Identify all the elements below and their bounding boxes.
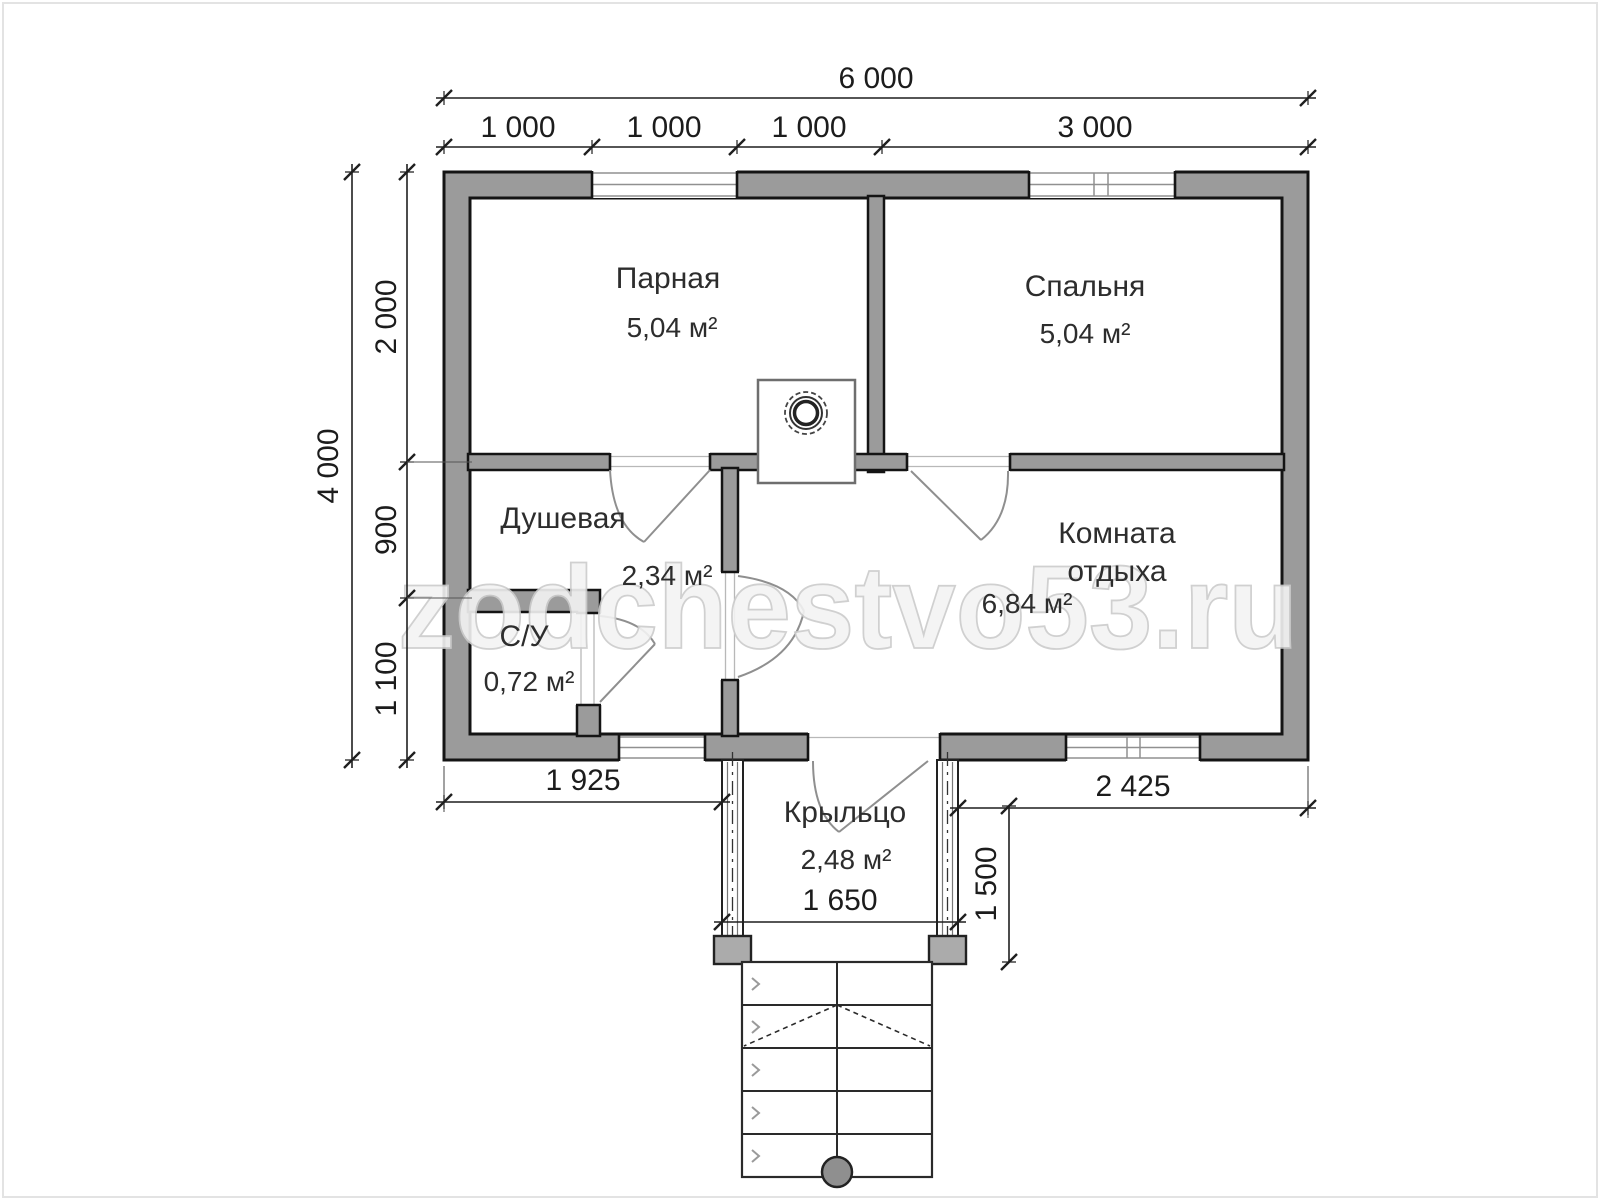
room-area-lounge: 6,84 м² — [982, 588, 1073, 619]
room-area-parnaya: 5,04 м² — [627, 312, 718, 343]
window-bottom-right — [1066, 735, 1200, 762]
stairs — [742, 962, 932, 1187]
dim-porch-depth-label: 1 500 — [970, 846, 1003, 921]
door-swing-bedroom — [911, 471, 1008, 540]
floor-plan-svg: zodchestvo53.ru Парная 5,04 м² Спальня 5… — [0, 0, 1600, 1200]
dim-top-total-label: 6 000 — [838, 62, 913, 95]
porch-column-base-right — [929, 936, 966, 964]
dim-left-total-label: 4 000 — [312, 428, 345, 503]
room-label-wc: С/У — [499, 620, 549, 653]
dim-top-seg2-label: 1 000 — [626, 111, 701, 144]
porch-column-right — [937, 752, 958, 946]
dim-top-seg1-label: 1 000 — [480, 111, 555, 144]
dim-porch-width-label: 1 650 — [802, 884, 877, 917]
dim-left-seg3-label: 1 100 — [370, 641, 403, 716]
stove — [758, 380, 855, 483]
room-label-porch: Крыльцо — [784, 796, 906, 829]
room-area-dushevaya: 2,34 м² — [622, 560, 713, 591]
dim-left-seg1-label: 2 000 — [370, 279, 403, 354]
dim-bottom-right-label: 2 425 — [1095, 770, 1170, 803]
stove-body — [758, 380, 855, 483]
stairs-direction-circle — [822, 1157, 852, 1187]
window-top-left — [592, 170, 737, 199]
floor-plan-page: zodchestvo53.ru Парная 5,04 м² Спальня 5… — [0, 0, 1600, 1200]
wall-bedroom-divider — [868, 196, 884, 472]
room-area-porch: 2,48 м² — [801, 844, 892, 875]
window-bottom-left — [619, 735, 705, 762]
wall-middle — [468, 454, 1284, 470]
door-opening-shower — [610, 451, 710, 473]
room-area-spalnya: 5,04 м² — [1040, 318, 1131, 349]
porch-column-base-left — [714, 936, 751, 964]
window-top-right — [1029, 170, 1175, 199]
room-label-parnaya: Парная — [616, 262, 720, 295]
dim-left-seg2-label: 900 — [370, 505, 403, 555]
room-label-spalnya: Спальня — [1025, 270, 1146, 303]
porch-column-left — [722, 752, 743, 946]
room-label-lounge-line2: отдыха — [1067, 555, 1167, 588]
dim-top-seg3-label: 1 000 — [771, 111, 846, 144]
door-opening-bedroom — [907, 451, 1010, 473]
dim-bottom-left-label: 1 925 — [545, 764, 620, 797]
room-label-lounge-line1: Комната — [1058, 517, 1176, 550]
room-area-wc: 0,72 м² — [484, 666, 575, 697]
door-opening-entrance — [808, 731, 940, 763]
room-label-dushevaya: Душевая — [500, 502, 625, 535]
dim-top-seg4-label: 3 000 — [1057, 111, 1132, 144]
